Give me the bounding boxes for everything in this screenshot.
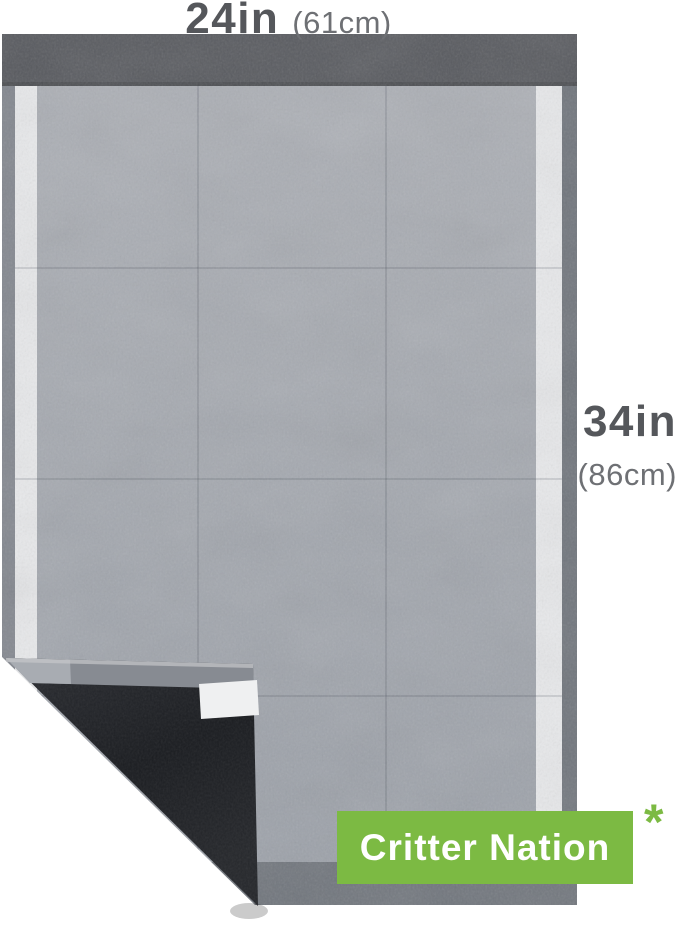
brand-badge-label: Critter Nation — [360, 829, 610, 866]
flap-shadow — [230, 903, 268, 919]
height-value: 34in — [578, 400, 677, 444]
product-image-canvas: 24in (61cm) 34in (86cm) Critter Nation * — [0, 0, 679, 925]
width-dimension-label: 24in (61cm) — [0, 0, 577, 41]
brand-badge: Critter Nation — [337, 811, 633, 884]
width-value: 24in — [185, 0, 279, 41]
height-metric-value: (86cm) — [578, 459, 677, 490]
footnote-asterisk: * — [644, 797, 663, 847]
height-dimension-label: 34in (86cm) — [578, 400, 677, 490]
adhesive-tape-strip — [199, 680, 259, 719]
width-metric-value: (61cm) — [292, 7, 391, 38]
